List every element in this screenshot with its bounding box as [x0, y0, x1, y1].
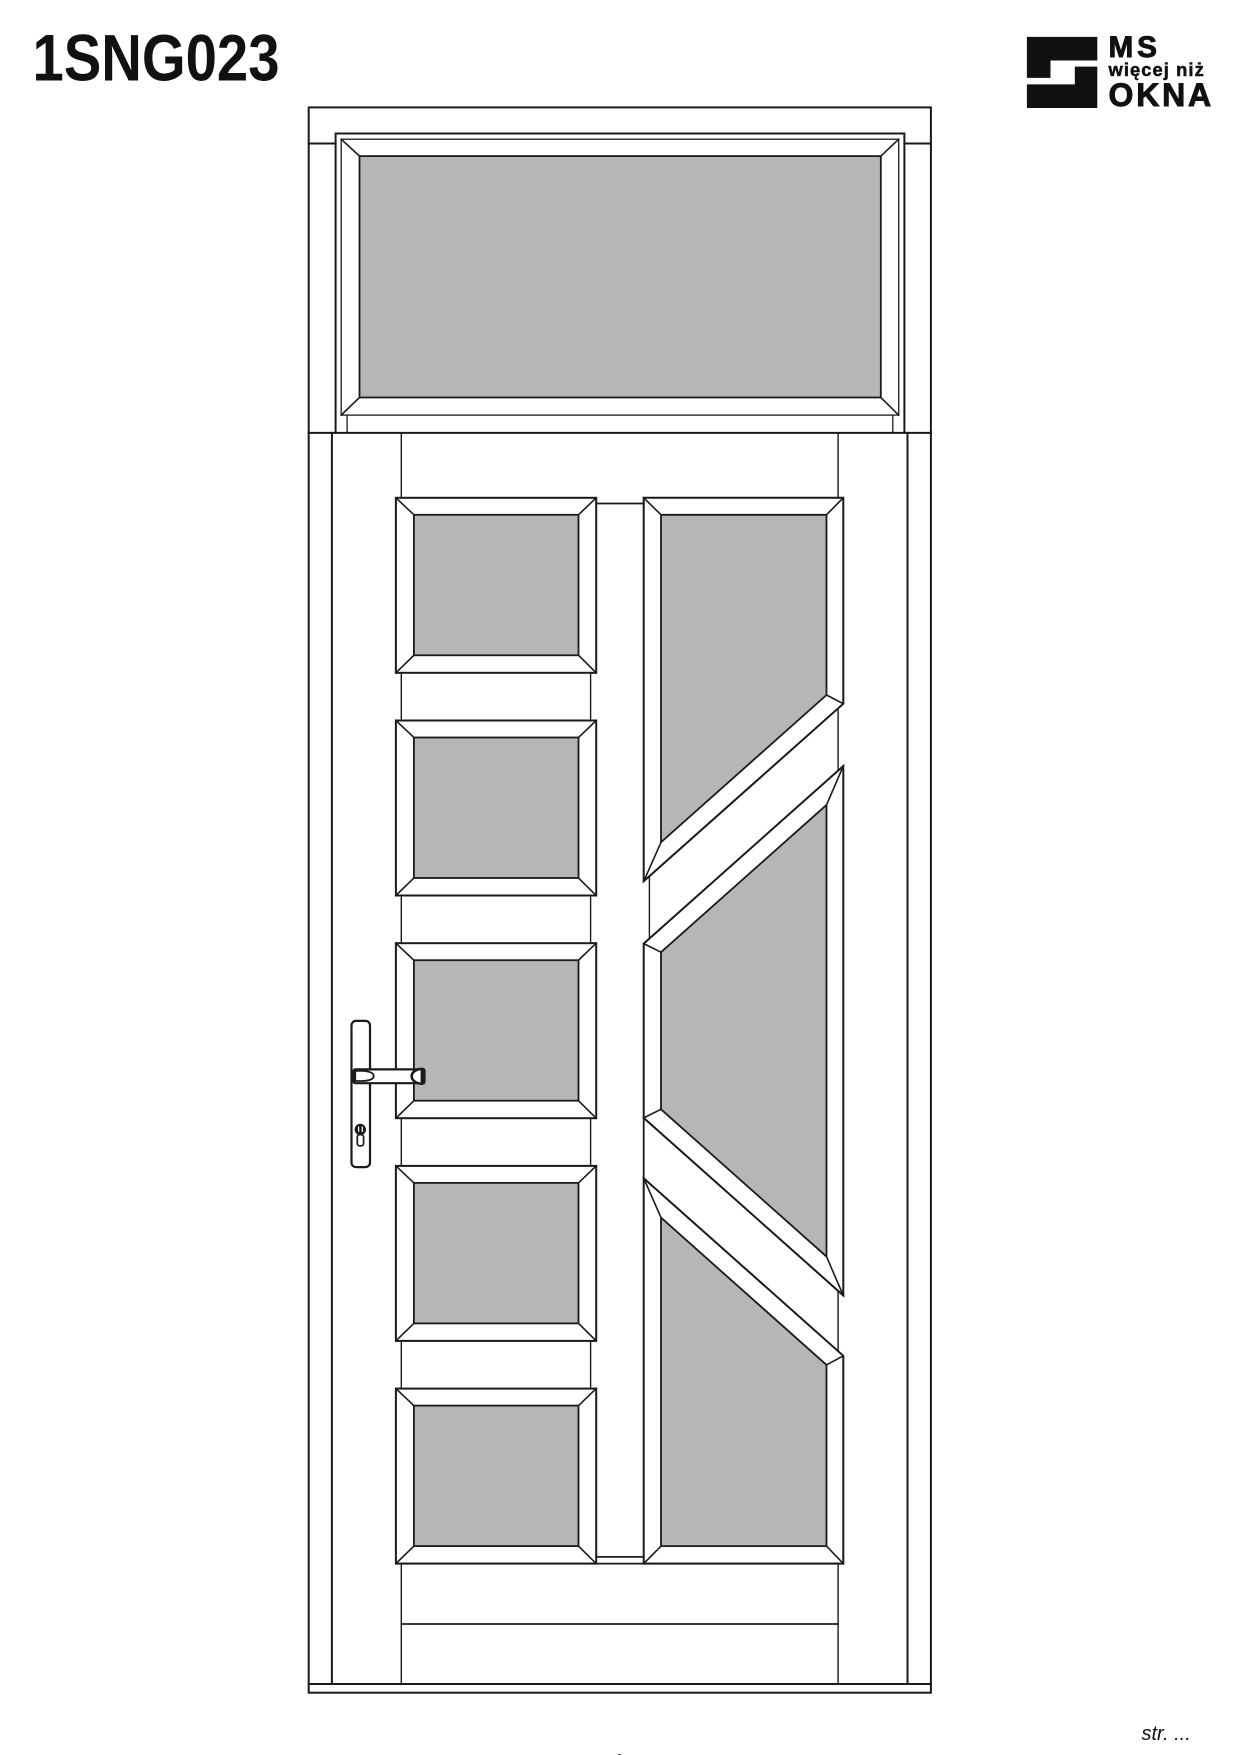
svg-text:str. ...: str. ... — [1142, 1723, 1191, 1745]
svg-text:1SNG023: 1SNG023 — [33, 21, 280, 94]
svg-text:OKNA: OKNA — [1109, 77, 1214, 113]
